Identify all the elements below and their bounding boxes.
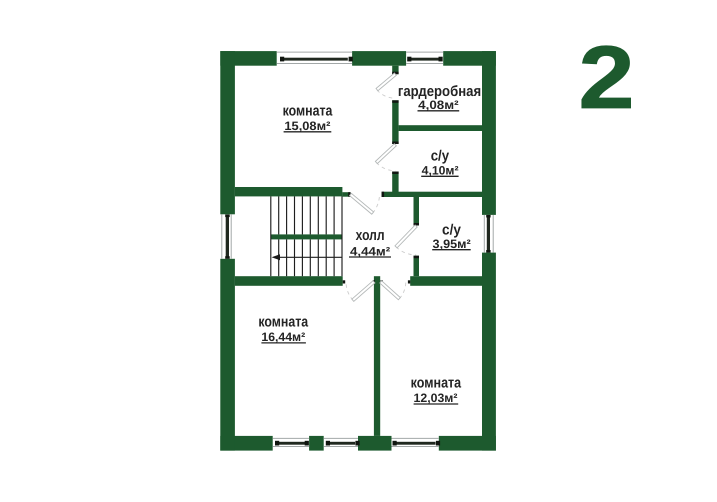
svg-text:комната: комната <box>411 376 462 392</box>
svg-text:комната: комната <box>283 104 333 120</box>
svg-text:16,44м²: 16,44м² <box>261 330 305 344</box>
svg-text:2: 2 <box>578 28 634 128</box>
svg-text:12,03м²: 12,03м² <box>414 391 458 405</box>
svg-text:4,10м²: 4,10м² <box>422 164 459 178</box>
svg-text:15,08м²: 15,08м² <box>284 119 330 133</box>
svg-text:4,44м²: 4,44м² <box>350 244 390 258</box>
svg-text:холл: холл <box>356 228 385 244</box>
svg-text:с/у: с/у <box>431 149 450 165</box>
svg-text:4,08м²: 4,08м² <box>418 98 458 112</box>
svg-text:3,95м²: 3,95м² <box>433 237 471 251</box>
svg-text:комната: комната <box>258 315 308 331</box>
